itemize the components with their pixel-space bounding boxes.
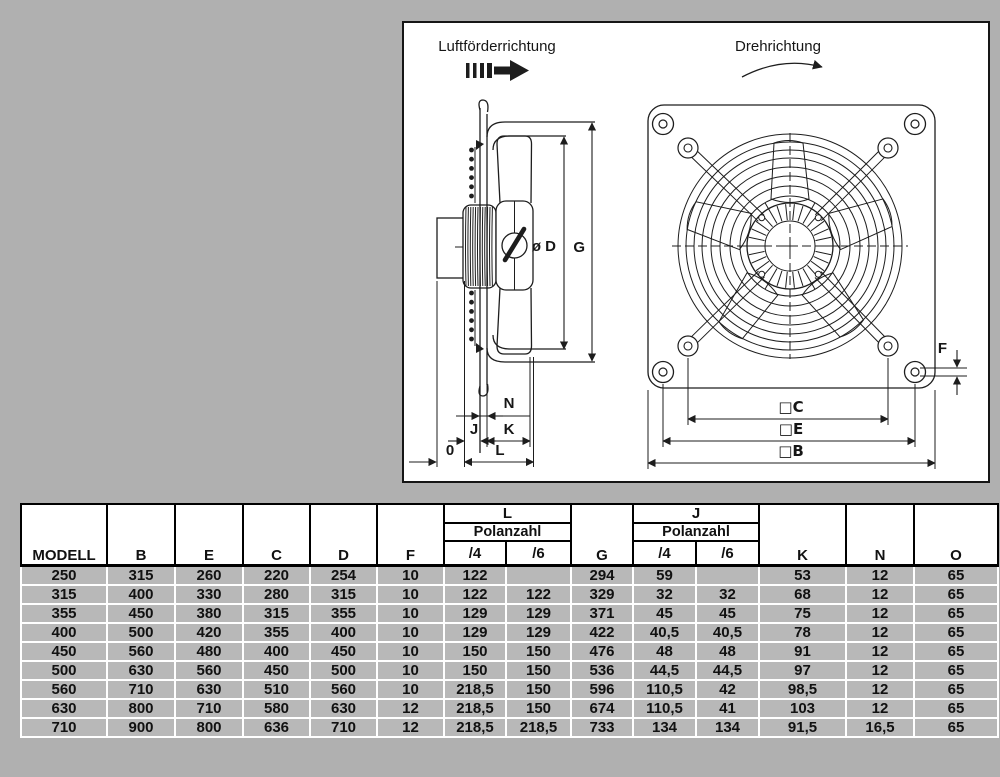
model-cell: 450 xyxy=(21,642,107,661)
value-cell: 53 xyxy=(759,566,846,586)
page: { "drawing": { "airflow_label": "Luftför… xyxy=(0,0,1000,777)
side-view: ø D G N J K 0 L xyxy=(409,100,595,467)
value-cell: 65 xyxy=(914,585,998,604)
rotation-direction-label: Drehrichtung xyxy=(735,38,821,55)
table-row: 56071063051056010218,5150596110,54298,51… xyxy=(21,680,998,699)
value-cell: 260 xyxy=(175,566,243,586)
value-cell: 129 xyxy=(506,623,571,642)
value-cell: 450 xyxy=(107,604,175,623)
dim-label-n: N xyxy=(504,395,515,412)
value-cell: 65 xyxy=(914,699,998,718)
value-cell: 218,5 xyxy=(444,718,506,737)
value-cell: 12 xyxy=(846,699,914,718)
value-cell: 630 xyxy=(310,699,377,718)
table-row: 4005004203554001012912942240,540,5781265 xyxy=(21,623,998,642)
value-cell: 150 xyxy=(506,661,571,680)
dim-label-o: 0 xyxy=(446,442,454,459)
value-cell: 254 xyxy=(310,566,377,586)
value-cell: 560 xyxy=(175,661,243,680)
col-header-n: N xyxy=(846,504,914,566)
value-cell: 12 xyxy=(846,585,914,604)
value-cell: 44,5 xyxy=(696,661,759,680)
value-cell: 422 xyxy=(571,623,633,642)
value-cell: 733 xyxy=(571,718,633,737)
value-cell: 65 xyxy=(914,604,998,623)
value-cell: 630 xyxy=(175,680,243,699)
col-group-header-l: L xyxy=(444,504,571,523)
value-cell: 129 xyxy=(506,604,571,623)
value-cell: 476 xyxy=(571,642,633,661)
rotation-arrow-icon xyxy=(742,63,822,77)
value-cell: 218,5 xyxy=(506,718,571,737)
value-cell: 40,5 xyxy=(696,623,759,642)
value-cell: 674 xyxy=(571,699,633,718)
model-cell: 500 xyxy=(21,661,107,680)
value-cell: 134 xyxy=(633,718,696,737)
value-cell: 12 xyxy=(846,566,914,586)
value-cell: 330 xyxy=(175,585,243,604)
value-cell: 800 xyxy=(107,699,175,718)
value-cell: 65 xyxy=(914,718,998,737)
airflow-direction-label: Luftförderrichtung xyxy=(438,38,556,55)
value-cell: 218,5 xyxy=(444,699,506,718)
value-cell xyxy=(506,566,571,586)
drawing-panel: Luftförderrichtung Drehrichtung xyxy=(402,21,990,483)
value-cell: 40,5 xyxy=(633,623,696,642)
subheader-l-poles-4: /4 xyxy=(444,541,506,566)
col-header-f: F xyxy=(377,504,444,566)
col-header-b: B xyxy=(107,504,175,566)
value-cell: 450 xyxy=(310,642,377,661)
dim-label-g: G xyxy=(573,239,585,256)
table-row: 315400330280315101221223293232681265 xyxy=(21,585,998,604)
value-cell: 12 xyxy=(846,680,914,699)
value-cell: 280 xyxy=(243,585,310,604)
fan-technical-drawing: Luftförderrichtung Drehrichtung xyxy=(404,23,988,481)
value-cell: 103 xyxy=(759,699,846,718)
dim-label-square-b: □B xyxy=(778,442,804,460)
value-cell: 44,5 xyxy=(633,661,696,680)
col-header-g: G xyxy=(571,504,633,566)
col-header-o: O xyxy=(914,504,998,566)
value-cell: 65 xyxy=(914,566,998,586)
value-cell: 12 xyxy=(846,623,914,642)
value-cell: 32 xyxy=(633,585,696,604)
value-cell: 42 xyxy=(696,680,759,699)
table-row: 450560480400450101501504764848911265 xyxy=(21,642,998,661)
value-cell: 636 xyxy=(243,718,310,737)
subheader-j-poles-4: /4 xyxy=(633,541,696,566)
value-cell: 450 xyxy=(243,661,310,680)
col-header-c: C xyxy=(243,504,310,566)
value-cell: 122 xyxy=(444,566,506,586)
value-cell: 315 xyxy=(310,585,377,604)
value-cell: 560 xyxy=(310,680,377,699)
value-cell: 129 xyxy=(444,604,506,623)
value-cell: 480 xyxy=(175,642,243,661)
table-row: 2503152602202541012229459531265 xyxy=(21,566,998,586)
value-cell: 48 xyxy=(633,642,696,661)
value-cell: 41 xyxy=(696,699,759,718)
model-cell: 560 xyxy=(21,680,107,699)
col-header-e: E xyxy=(175,504,243,566)
table-row: 355450380315355101291293714545751265 xyxy=(21,604,998,623)
value-cell: 48 xyxy=(696,642,759,661)
value-cell: 355 xyxy=(243,623,310,642)
junction-box xyxy=(437,218,464,278)
dim-label-square-c: □C xyxy=(778,398,803,416)
value-cell: 45 xyxy=(633,604,696,623)
value-cell: 91,5 xyxy=(759,718,846,737)
table-header: MODELL B E C D F L G J K N O Polanzahl P… xyxy=(21,504,998,566)
value-cell: 129 xyxy=(444,623,506,642)
value-cell: 710 xyxy=(175,699,243,718)
value-cell: 65 xyxy=(914,623,998,642)
value-cell: 65 xyxy=(914,642,998,661)
model-cell: 355 xyxy=(21,604,107,623)
value-cell: 150 xyxy=(444,642,506,661)
value-cell xyxy=(696,566,759,586)
value-cell: 12 xyxy=(377,718,444,737)
dimension-table: MODELL B E C D F L G J K N O Polanzahl P… xyxy=(20,503,999,738)
value-cell: 10 xyxy=(377,642,444,661)
value-cell: 32 xyxy=(696,585,759,604)
value-cell: 400 xyxy=(107,585,175,604)
dim-label-f: F xyxy=(938,340,947,357)
value-cell: 16,5 xyxy=(846,718,914,737)
dim-label-l: L xyxy=(495,442,504,459)
value-cell: 710 xyxy=(107,680,175,699)
value-cell: 150 xyxy=(506,699,571,718)
value-cell: 500 xyxy=(107,623,175,642)
value-cell: 10 xyxy=(377,661,444,680)
subheader-polanzahl-l: Polanzahl xyxy=(444,523,571,541)
subheader-l-poles-6: /6 xyxy=(506,541,571,566)
model-cell: 315 xyxy=(21,585,107,604)
blade-bottom-profile xyxy=(497,288,532,354)
blade-top-profile xyxy=(497,136,532,203)
col-header-modell: MODELL xyxy=(21,504,107,566)
value-cell: 150 xyxy=(506,680,571,699)
col-group-header-j: J xyxy=(633,504,759,523)
value-cell: 329 xyxy=(571,585,633,604)
value-cell: 150 xyxy=(444,661,506,680)
table-row: 63080071058063012218,5150674110,54110312… xyxy=(21,699,998,718)
table-row: 71090080063671012218,5218,573313413491,5… xyxy=(21,718,998,737)
value-cell: 134 xyxy=(696,718,759,737)
value-cell: 630 xyxy=(107,661,175,680)
value-cell: 315 xyxy=(107,566,175,586)
value-cell: 315 xyxy=(243,604,310,623)
value-cell: 91 xyxy=(759,642,846,661)
value-cell: 355 xyxy=(310,604,377,623)
value-cell: 12 xyxy=(377,699,444,718)
model-cell: 400 xyxy=(21,623,107,642)
subheader-polanzahl-j: Polanzahl xyxy=(633,523,759,541)
value-cell: 110,5 xyxy=(633,699,696,718)
value-cell: 560 xyxy=(107,642,175,661)
value-cell: 380 xyxy=(175,604,243,623)
table-row: 5006305604505001015015053644,544,5971265 xyxy=(21,661,998,680)
value-cell: 218,5 xyxy=(444,680,506,699)
value-cell: 68 xyxy=(759,585,846,604)
dim-label-k: K xyxy=(504,421,515,438)
value-cell: 10 xyxy=(377,585,444,604)
value-cell: 12 xyxy=(846,604,914,623)
value-cell: 98,5 xyxy=(759,680,846,699)
value-cell: 65 xyxy=(914,661,998,680)
value-cell: 400 xyxy=(243,642,310,661)
col-header-k: K xyxy=(759,504,846,566)
value-cell: 75 xyxy=(759,604,846,623)
value-cell: 110,5 xyxy=(633,680,696,699)
model-cell: 250 xyxy=(21,566,107,586)
value-cell: 12 xyxy=(846,661,914,680)
front-view: F □C □E □B xyxy=(648,105,967,469)
model-cell: 710 xyxy=(21,718,107,737)
value-cell: 596 xyxy=(571,680,633,699)
value-cell: 59 xyxy=(633,566,696,586)
value-cell: 45 xyxy=(696,604,759,623)
value-cell: 536 xyxy=(571,661,633,680)
value-cell: 420 xyxy=(175,623,243,642)
value-cell: 122 xyxy=(444,585,506,604)
subheader-j-poles-6: /6 xyxy=(696,541,759,566)
value-cell: 220 xyxy=(243,566,310,586)
dim-label-j: J xyxy=(470,421,478,438)
value-cell: 900 xyxy=(107,718,175,737)
value-cell: 97 xyxy=(759,661,846,680)
value-cell: 122 xyxy=(506,585,571,604)
value-cell: 10 xyxy=(377,604,444,623)
dim-label-square-e: □E xyxy=(779,420,803,438)
value-cell: 371 xyxy=(571,604,633,623)
col-header-d: D xyxy=(310,504,377,566)
value-cell: 400 xyxy=(310,623,377,642)
value-cell: 10 xyxy=(377,680,444,699)
airflow-arrow-icon xyxy=(466,60,529,81)
value-cell: 10 xyxy=(377,566,444,586)
value-cell: 294 xyxy=(571,566,633,586)
table-body: 2503152602202541012229459531265315400330… xyxy=(21,566,998,738)
value-cell: 510 xyxy=(243,680,310,699)
model-cell: 630 xyxy=(21,699,107,718)
value-cell: 580 xyxy=(243,699,310,718)
value-cell: 65 xyxy=(914,680,998,699)
value-cell: 78 xyxy=(759,623,846,642)
value-cell: 800 xyxy=(175,718,243,737)
value-cell: 500 xyxy=(310,661,377,680)
value-cell: 710 xyxy=(310,718,377,737)
value-cell: 10 xyxy=(377,623,444,642)
value-cell: 150 xyxy=(506,642,571,661)
dim-label-diameter-d: ø D xyxy=(532,238,556,255)
value-cell: 12 xyxy=(846,642,914,661)
